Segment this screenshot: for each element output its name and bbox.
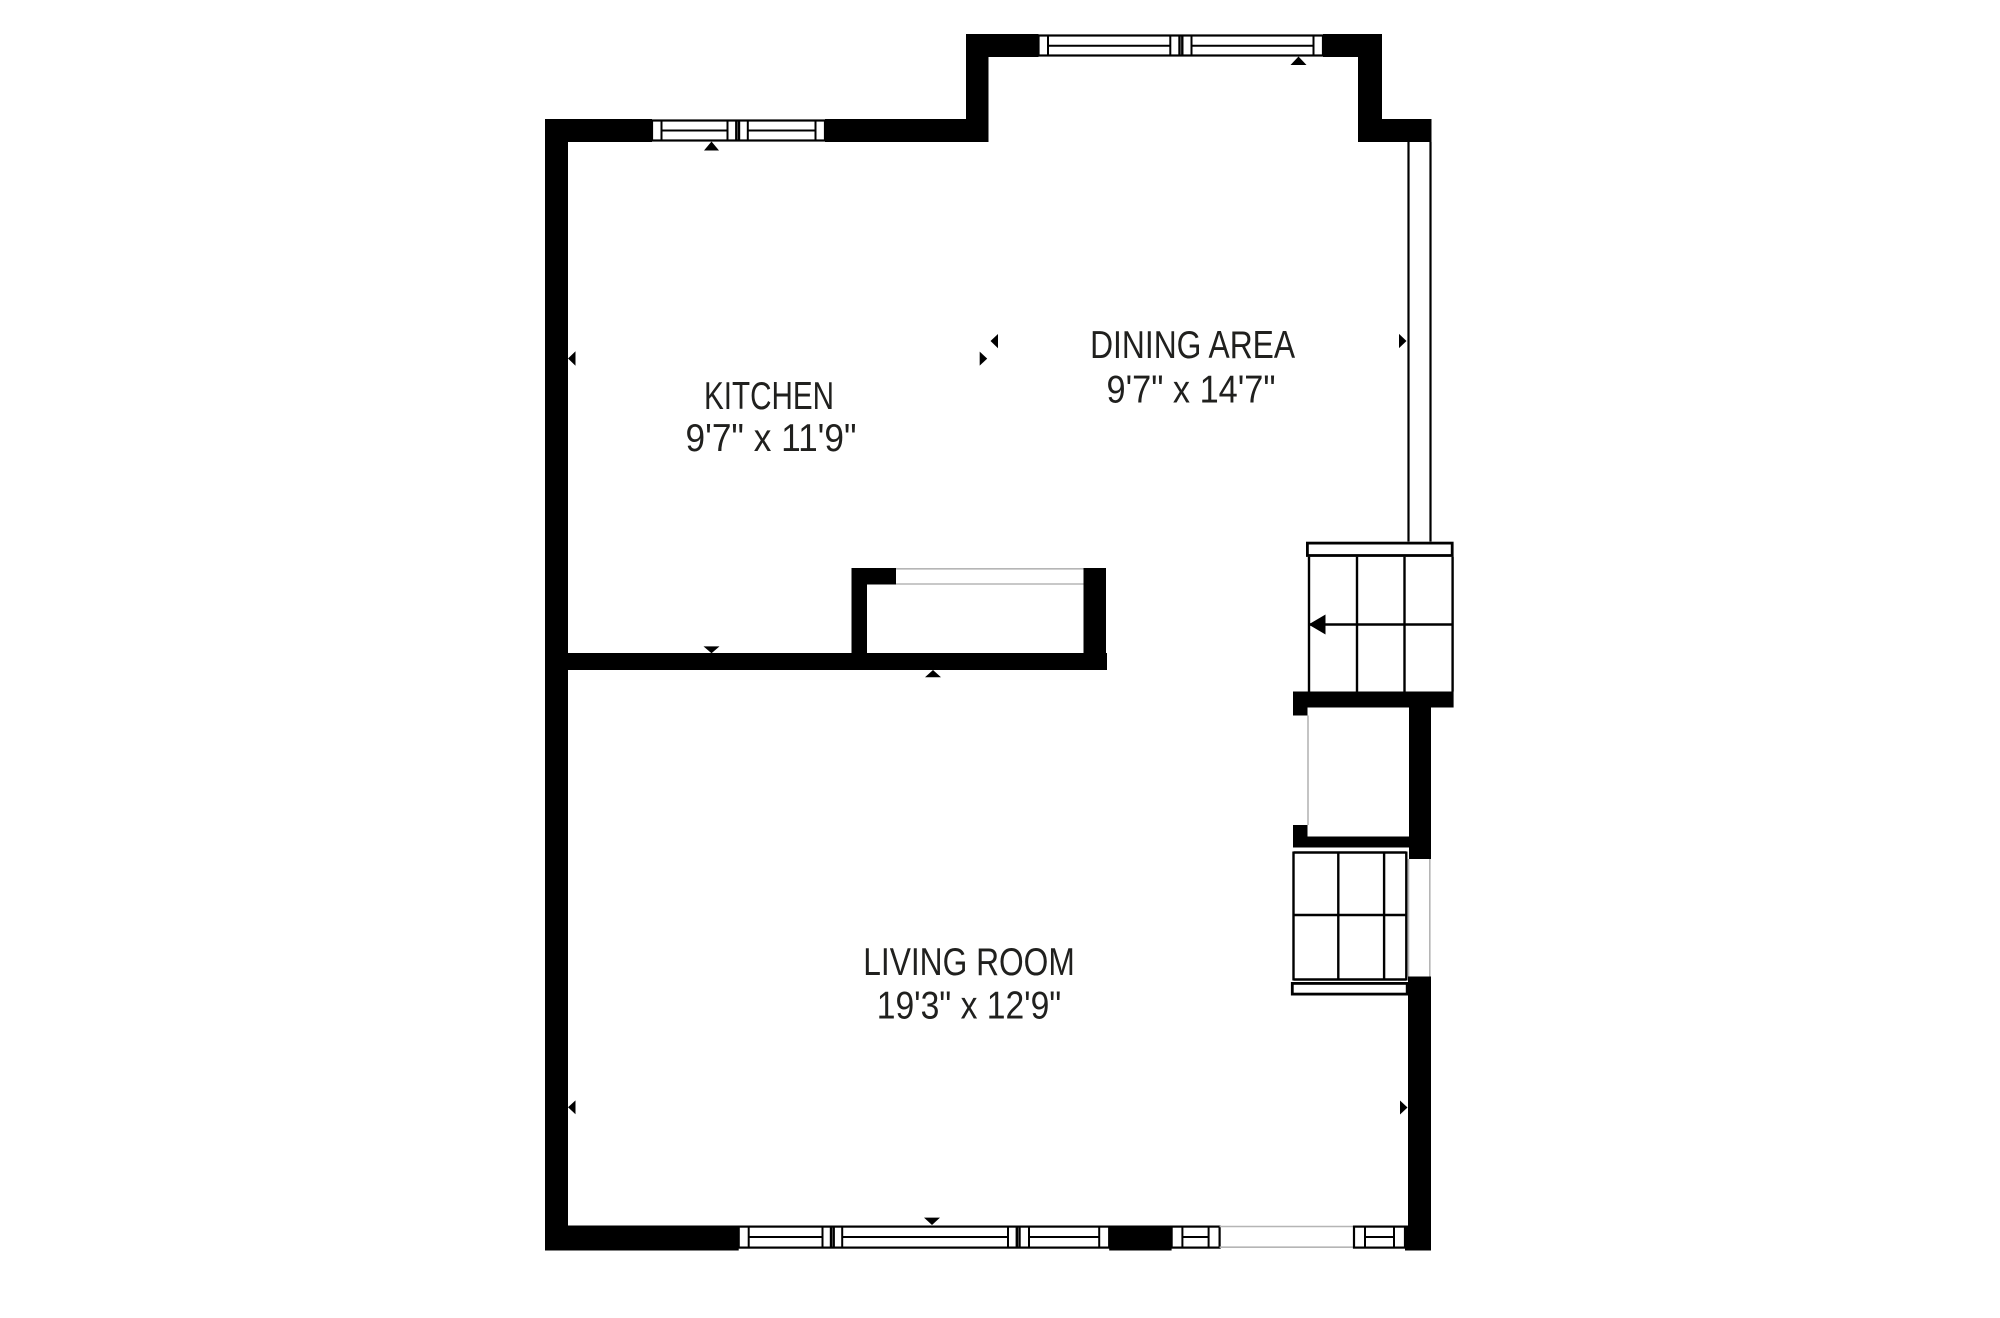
svg-text:9'7" x 11'9": 9'7" x 11'9"	[686, 417, 857, 460]
svg-text:DINING AREA: DINING AREA	[1090, 324, 1295, 367]
svg-text:9'7" x 14'7": 9'7" x 14'7"	[1107, 369, 1276, 412]
svg-text:KITCHEN: KITCHEN	[704, 375, 834, 418]
svg-text:LIVING ROOM: LIVING ROOM	[863, 941, 1075, 984]
svg-text:19'3" x 12'9": 19'3" x 12'9"	[877, 985, 1062, 1028]
